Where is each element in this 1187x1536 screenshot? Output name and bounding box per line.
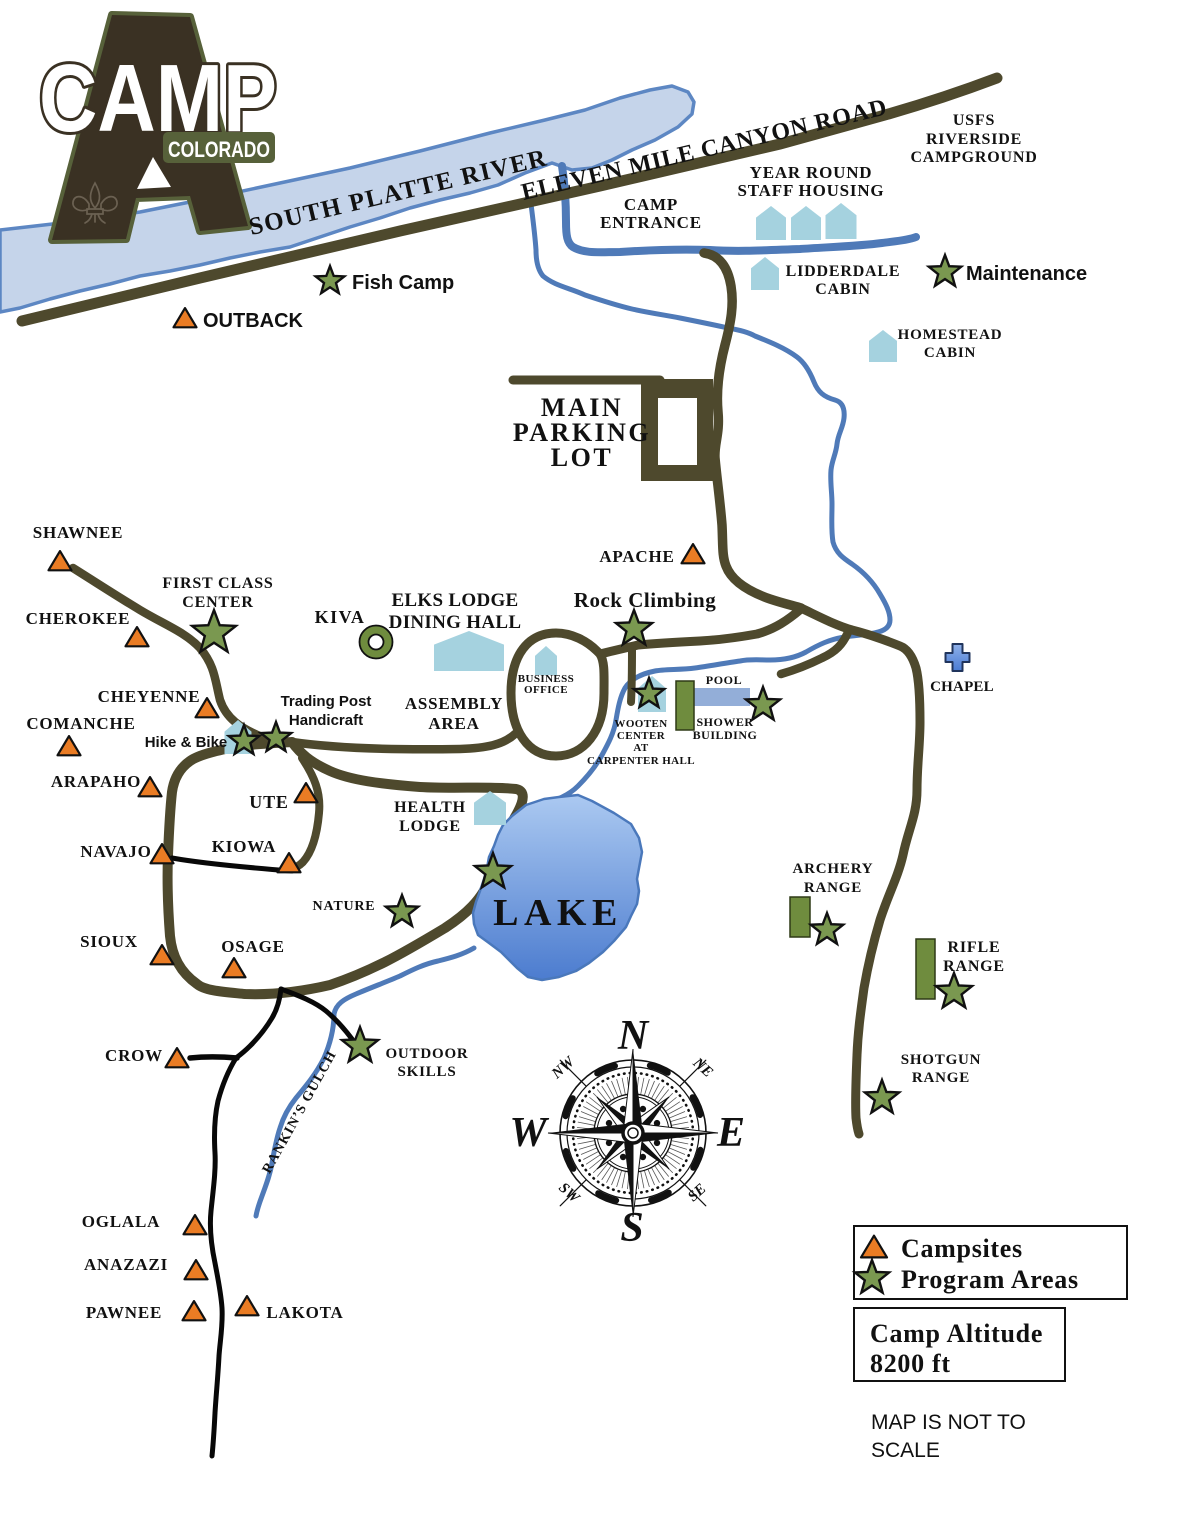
svg-text:LAKE: LAKE: [493, 892, 623, 934]
svg-text:CHEROKEE: CHEROKEE: [26, 609, 131, 628]
svg-text:CENTER: CENTER: [617, 730, 666, 742]
svg-text:ANAZAZI: ANAZAZI: [84, 1255, 168, 1274]
svg-text:NATURE: NATURE: [313, 899, 376, 914]
svg-text:ARCHERY: ARCHERY: [793, 861, 874, 877]
svg-text:APACHE: APACHE: [599, 547, 674, 566]
svg-text:CHEYENNE: CHEYENNE: [98, 687, 201, 706]
svg-text:Trading Post: Trading Post: [281, 693, 372, 710]
svg-text:RIVERSIDE: RIVERSIDE: [926, 131, 1022, 148]
svg-text:MAP IS NOT TO: MAP IS NOT TO: [871, 1411, 1026, 1434]
svg-text:POOL: POOL: [706, 673, 742, 687]
svg-text:W: W: [509, 1110, 549, 1156]
svg-text:S: S: [620, 1205, 643, 1251]
svg-text:SIOUX: SIOUX: [80, 932, 138, 951]
svg-text:WOOTEN: WOOTEN: [614, 718, 667, 730]
svg-text:HEALTH: HEALTH: [394, 799, 466, 816]
svg-text:OUTBACK: OUTBACK: [203, 310, 304, 332]
svg-text:LIDDERDALE: LIDDERDALE: [786, 263, 901, 280]
svg-text:LODGE: LODGE: [399, 818, 461, 835]
svg-text:CROW: CROW: [105, 1046, 163, 1065]
svg-text:CABIN: CABIN: [815, 281, 871, 298]
svg-text:NAVAJO: NAVAJO: [80, 842, 151, 861]
svg-text:DINING HALL: DINING HALL: [389, 612, 522, 633]
svg-text:OSAGE: OSAGE: [221, 937, 285, 956]
svg-text:COMANCHE: COMANCHE: [26, 714, 135, 733]
svg-text:RANGE: RANGE: [943, 958, 1005, 975]
svg-text:UTE: UTE: [249, 792, 288, 812]
svg-text:CENTER: CENTER: [182, 594, 253, 611]
svg-text:RANGE: RANGE: [912, 1070, 970, 1086]
svg-text:Hike & Bike: Hike & Bike: [145, 734, 228, 751]
svg-text:Program Areas: Program Areas: [901, 1265, 1079, 1294]
svg-text:FIRST CLASS: FIRST CLASS: [162, 575, 273, 592]
svg-text:Camp Altitude: Camp Altitude: [870, 1319, 1043, 1348]
svg-text:CHAPEL: CHAPEL: [930, 679, 994, 695]
svg-text:N: N: [617, 1013, 650, 1059]
svg-text:STAFF HOUSING: STAFF HOUSING: [738, 181, 885, 200]
svg-text:SHAWNEE: SHAWNEE: [33, 523, 124, 542]
svg-text:KIVA: KIVA: [315, 607, 366, 627]
svg-text:Campsites: Campsites: [901, 1234, 1023, 1263]
svg-text:ARAPAHO: ARAPAHO: [51, 772, 141, 791]
svg-text:CABIN: CABIN: [924, 345, 976, 361]
svg-text:YEAR ROUND: YEAR ROUND: [750, 163, 873, 182]
svg-text:LAKOTA: LAKOTA: [266, 1303, 343, 1322]
svg-text:BUILDING: BUILDING: [693, 728, 758, 742]
svg-text:Fish Camp: Fish Camp: [352, 272, 454, 294]
svg-text:SHOWER: SHOWER: [696, 715, 753, 729]
svg-text:CAMP: CAMP: [624, 195, 678, 214]
svg-text:CARPENTER HALL: CARPENTER HALL: [587, 755, 695, 767]
svg-text:AREA: AREA: [428, 714, 479, 733]
svg-text:HOMESTEAD: HOMESTEAD: [898, 327, 1003, 343]
svg-text:SKILLS: SKILLS: [398, 1064, 457, 1080]
svg-text:SCALE: SCALE: [871, 1439, 940, 1462]
svg-text:OGLALA: OGLALA: [82, 1212, 160, 1231]
svg-text:CAMPGROUND: CAMPGROUND: [910, 149, 1037, 166]
svg-text:AT: AT: [633, 742, 649, 754]
svg-text:ASSEMBLY: ASSEMBLY: [405, 694, 503, 713]
svg-text:SHOTGUN: SHOTGUN: [901, 1052, 982, 1068]
svg-text:Maintenance: Maintenance: [966, 263, 1087, 285]
svg-text:ELKS LODGE: ELKS LODGE: [391, 590, 518, 611]
svg-text:ENTRANCE: ENTRANCE: [600, 213, 702, 232]
svg-text:OFFICE: OFFICE: [524, 684, 568, 696]
svg-text:RANGE: RANGE: [804, 880, 862, 896]
svg-text:LOT: LOT: [551, 443, 613, 472]
svg-text:Rock Climbing: Rock Climbing: [574, 588, 716, 612]
svg-text:USFS: USFS: [953, 112, 995, 129]
svg-text:E: E: [716, 1110, 745, 1156]
svg-text:RIFLE: RIFLE: [948, 939, 1001, 956]
svg-text:COLORADO: COLORADO: [168, 137, 270, 162]
svg-text:Handicraft: Handicraft: [289, 712, 363, 729]
svg-text:PAWNEE: PAWNEE: [86, 1303, 162, 1322]
svg-text:KIOWA: KIOWA: [212, 837, 276, 856]
svg-text:8200 ft: 8200 ft: [870, 1349, 951, 1378]
svg-text:OUTDOOR: OUTDOOR: [385, 1046, 468, 1062]
